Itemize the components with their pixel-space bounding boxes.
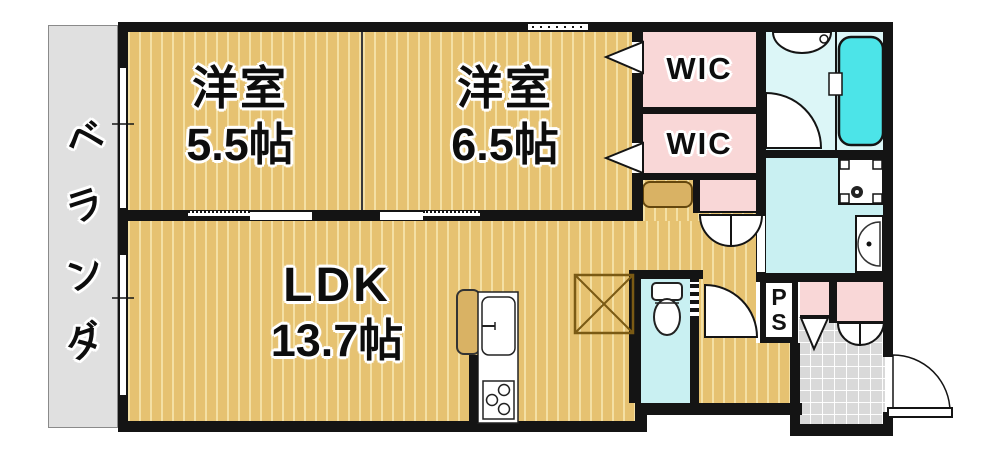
shoe-closet2-door-arc [860,323,884,345]
burner-icon [487,395,498,406]
bedroom2-name: 洋室 [390,60,620,116]
entrance-door-arc [893,355,950,412]
floor-plan: ベランダ P [0,0,1000,453]
shoe-closet2-door-arc [838,323,860,345]
kitchen-wall-stub [469,355,478,423]
pan-corner [840,160,849,169]
bath-faucet-icon [820,35,828,43]
kitchen-counter-end [457,290,480,354]
basin-faucet-dot [867,242,872,247]
toilet-bowl-icon [654,299,680,335]
burner-icon [499,385,510,396]
pan-corner [873,160,882,169]
wic1-label: WIC [643,51,756,87]
wic2-label: WIC [643,126,756,162]
pan-corner [873,194,882,203]
hall-closet-door-arc [731,215,762,246]
ldk-size: 13.7帖 [222,312,452,370]
hall-closet-door-arc [700,215,731,246]
ldk-label: LDK 13.7帖 [222,260,452,370]
burner-icon [499,404,510,415]
bedroom2-size: 6.5帖 [390,116,620,174]
bathtub-icon [839,37,883,145]
ldk-name: LDK [222,260,452,312]
hall-door-arc [705,285,757,337]
bedroom1-size: 5.5帖 [125,116,355,174]
bath-door-panel [829,73,842,95]
shoe-closet1-door-icon [801,318,828,349]
bedroom2-label: 洋室 6.5帖 [390,60,620,174]
drain-dot [855,190,859,194]
bath-door-arc [766,93,821,148]
entrance-door-leaf [888,408,952,417]
bedroom1-label: 洋室 5.5帖 [125,60,355,174]
bedroom1-name: 洋室 [125,60,355,116]
pan-corner [840,194,849,203]
toilet-tank-icon [652,283,682,300]
